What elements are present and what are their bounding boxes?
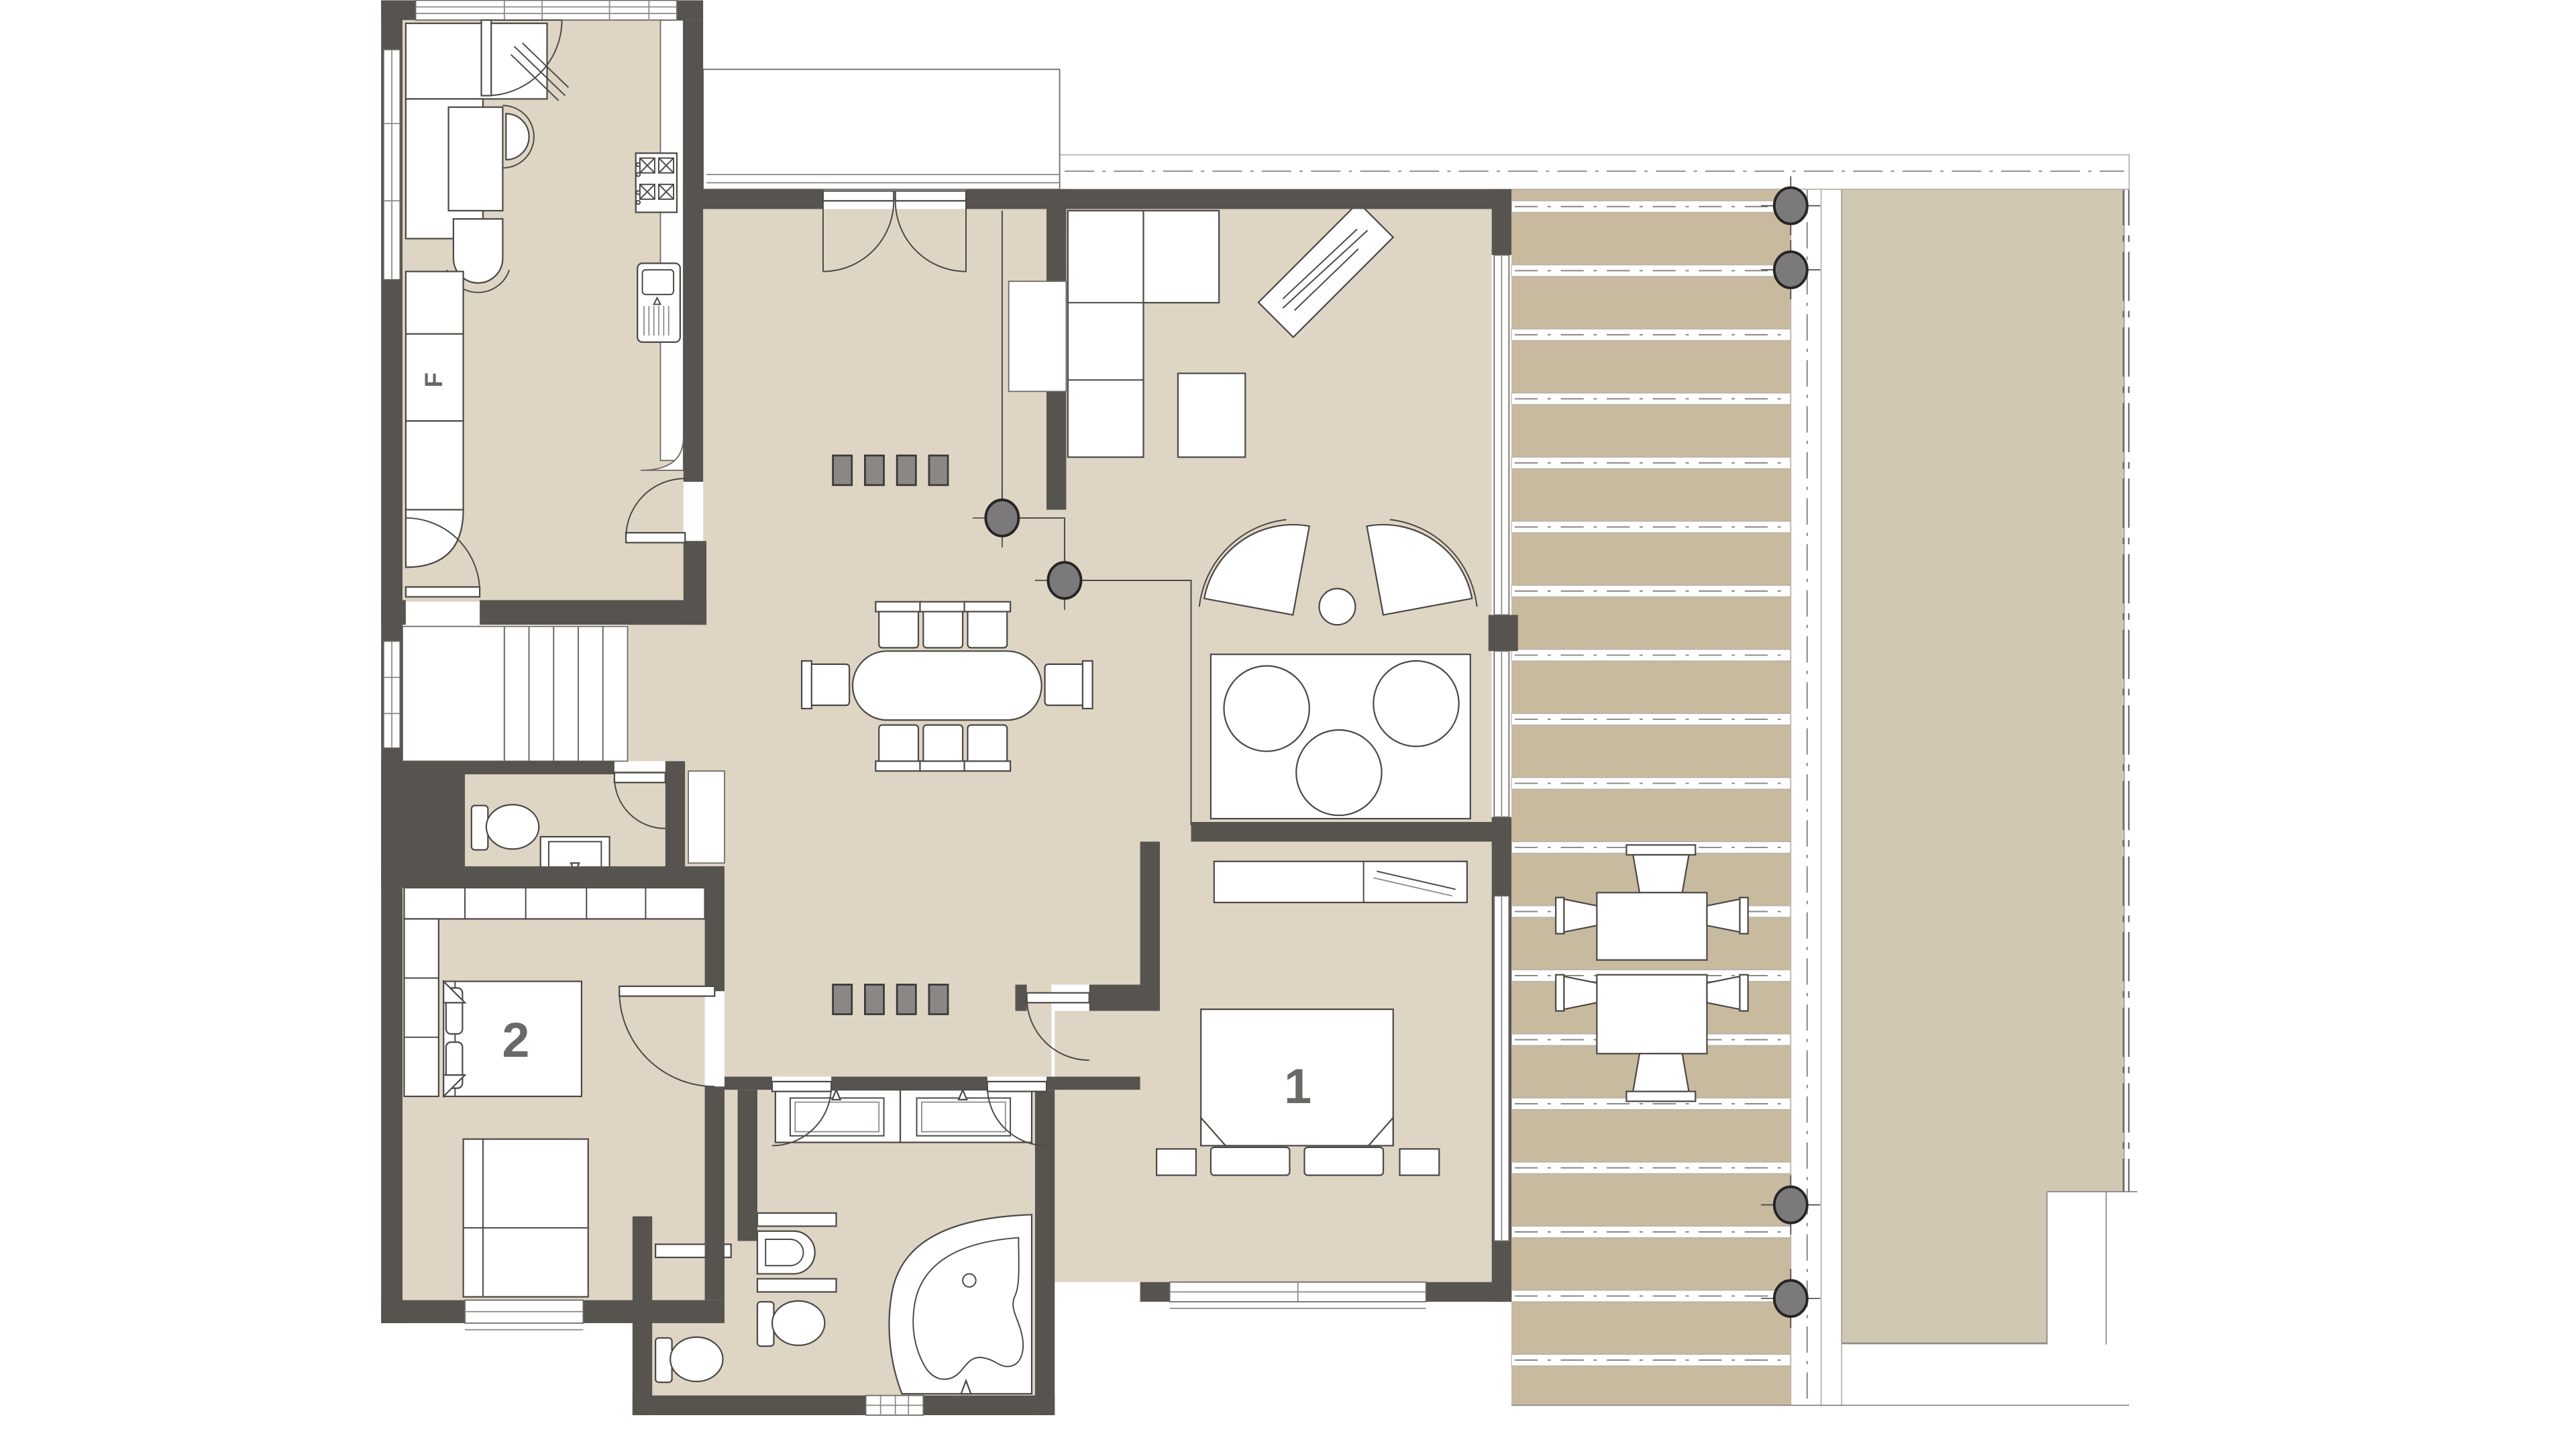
wardrobe-top-row — [404, 888, 704, 919]
fridge-label: F — [420, 372, 447, 387]
coffee-table — [1178, 373, 1245, 457]
dining-chair — [875, 602, 922, 648]
window-living-east-upper — [1494, 255, 1509, 615]
wall-bathroom-north-c — [1046, 1077, 1140, 1090]
wall-bedroom2-east-upper — [705, 866, 724, 991]
stall-toilet-tank — [655, 1338, 672, 1382]
window-kitchen-north — [416, 1, 677, 20]
dining-chair — [920, 602, 966, 648]
hall-gray-marker — [865, 984, 883, 1014]
bedroom-1-label: 1 — [1284, 1058, 1311, 1114]
wall-bathroom-north-b — [831, 1077, 987, 1090]
overhang-band — [1060, 155, 2129, 189]
floor-plan-page: { "plan": { "type": "residential-floor-p… — [0, 0, 2576, 1450]
window-kitchen-west — [384, 50, 400, 280]
window-bedroom1-east — [1494, 896, 1509, 1241]
kitchen-counter-top — [406, 23, 547, 99]
rug-with-tables — [1211, 654, 1470, 819]
wall-living-north — [1051, 189, 1511, 209]
entry-niche — [1009, 281, 1067, 391]
bed-1-pillow-2 — [1304, 1147, 1383, 1176]
hall-gray-marker — [929, 984, 948, 1014]
outdoor-chair-right-1 — [1707, 899, 1739, 932]
outdoor-chair-bottom — [1633, 1053, 1688, 1091]
outdoor-chair-left-2 — [1564, 976, 1597, 1009]
entry-porch — [703, 69, 1059, 189]
stall-toilet-bowl — [670, 1337, 722, 1382]
daybed — [464, 1139, 588, 1297]
hall-gray-marker — [929, 456, 948, 485]
outdoor-chair-left-1 — [1564, 899, 1597, 932]
porch-slab — [703, 69, 1059, 189]
wall-kitchen-east-upper — [684, 20, 703, 482]
lawn-area — [1841, 176, 2124, 1343]
wall-wc-west-mass — [381, 761, 465, 888]
dining-chair — [802, 661, 849, 709]
dining-chair — [920, 725, 966, 772]
nightstand-right — [1400, 1149, 1440, 1175]
wall-living-west-lower — [1046, 391, 1066, 509]
roof-overhang-band — [1060, 155, 2129, 189]
bathroom-toilet — [757, 1301, 824, 1346]
kitchen-cabinet-lower — [406, 421, 464, 509]
wall-living-east-stub — [1489, 615, 1518, 651]
hall-gray-marker — [897, 456, 916, 485]
kitchen-desk — [449, 107, 503, 211]
wall-bathroom-north-a — [724, 1077, 772, 1090]
staircase — [402, 627, 628, 762]
dining-chair — [965, 725, 1011, 772]
wall-living-east-upper — [1492, 189, 1511, 255]
hall-closet — [688, 771, 724, 863]
stair-well — [402, 627, 628, 762]
dining-chair — [965, 602, 1011, 648]
bedroom-1-alcove-floor — [1055, 1011, 1163, 1282]
bed-1-pillow-1 — [1211, 1147, 1290, 1176]
wall-bedroom1-west — [1140, 841, 1160, 984]
deck-base — [1511, 176, 1790, 1406]
bed-2: 2 — [443, 982, 582, 1096]
wall-bathroom-south — [633, 1396, 1055, 1415]
wc-toilet-tank — [472, 806, 488, 850]
window-bathroom-south — [866, 1396, 924, 1415]
round-table-1 — [1224, 666, 1309, 751]
nightstand-left — [1157, 1149, 1196, 1175]
outdoor-table-2 — [1597, 975, 1707, 1054]
outdoor-table-1 — [1597, 892, 1707, 960]
dining-table — [853, 651, 1042, 720]
wc-toilet-bowl — [486, 805, 539, 849]
floor-plan-svg: F — [0, 0, 2576, 1450]
wardrobe-left-column — [404, 919, 438, 1096]
window-living-east-lower — [1494, 651, 1509, 817]
dining-chair — [875, 725, 922, 772]
wall-wc-east — [665, 761, 685, 873]
bathroom-shelf-2 — [757, 1279, 837, 1292]
stair-landing-floor — [628, 625, 704, 761]
kitchen-counter-right — [660, 20, 683, 460]
sofa-left-section — [1068, 211, 1144, 457]
wall-kitchen-south-a — [381, 600, 406, 625]
window-bedroom2-south — [465, 1300, 583, 1330]
wall-fireplace — [1191, 822, 1512, 841]
kitchen-cabinet-upper — [406, 272, 464, 334]
side-table — [1320, 588, 1356, 625]
outdoor-chair-top-back — [1626, 845, 1695, 855]
wall-living-west-upper — [1046, 209, 1066, 282]
wall-kitchen-south-b — [480, 600, 706, 625]
window-stairs-west — [384, 641, 400, 748]
wall-bedroom1-entry-a — [1015, 984, 1026, 1011]
wall-stairs-south — [402, 761, 614, 774]
lawn-corner-notch — [2047, 1192, 2137, 1345]
hall-gray-marker — [833, 984, 852, 1014]
hall-gray-marker — [897, 984, 916, 1014]
dining-chair — [1045, 661, 1093, 709]
stove — [636, 153, 677, 212]
kitchen-sink — [637, 263, 680, 342]
outdoor-chair-bottom-back — [1626, 1092, 1695, 1102]
wall-entry-north-left — [684, 189, 823, 209]
window-bedroom1-south — [1170, 1282, 1426, 1308]
hall-gray-marker — [865, 456, 883, 485]
wall-bedroom2-east-lower — [705, 1086, 724, 1300]
bedroom-2-label: 2 — [502, 1012, 530, 1068]
round-table-2 — [1373, 661, 1458, 746]
outdoor-chair-top — [1633, 855, 1688, 892]
bathroom-shelf-1 — [757, 1213, 837, 1227]
fridge: F — [406, 272, 464, 568]
hall-gray-marker — [833, 456, 852, 485]
wall-bedroom1-entry-b — [1089, 984, 1160, 1011]
wall-stall-partition — [738, 1090, 757, 1241]
round-table-3 — [1296, 730, 1381, 815]
hallway-floor — [724, 866, 1051, 1076]
wall-bathroom-east — [1035, 1090, 1055, 1415]
vanity — [775, 1090, 1032, 1142]
bedroom-1-wardrobe — [1214, 862, 1467, 902]
outdoor-chair-right-2 — [1707, 976, 1739, 1009]
